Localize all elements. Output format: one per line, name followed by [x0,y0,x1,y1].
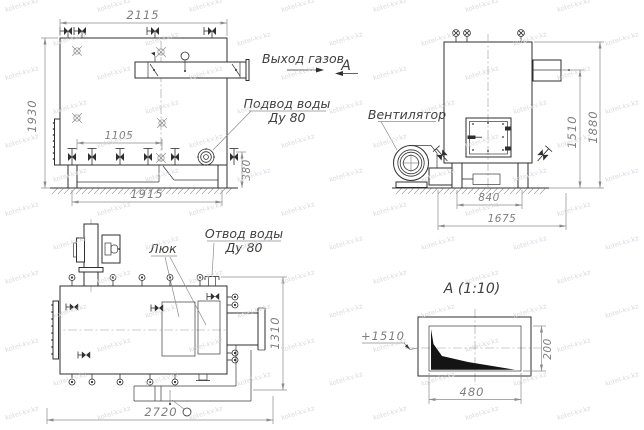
svg-text:kotel-kv.kz: kotel-kv.kz [4,0,40,14]
drawing-svg: 2115 1930 1105 380 1915 Выход газов Подв… [0,0,644,430]
svg-text:kotel-kv.kz: kotel-kv.kz [556,268,592,286]
front-view: A [335,30,604,230]
dim-1675: 1675 [488,213,517,225]
svg-text:kotel-kv.kz: kotel-kv.kz [280,404,316,422]
edge-valve-icon [227,294,239,300]
dim-1915: 1915 [130,187,163,201]
svg-text:kotel-kv.kz: kotel-kv.kz [328,166,364,184]
svg-text:kotel-kv.kz: kotel-kv.kz [52,98,88,116]
svg-text:kotel-kv.kz: kotel-kv.kz [4,64,40,82]
dim-200: 200 [542,338,554,360]
edge-valve-icon [227,302,239,308]
svg-text:kotel-kv.kz: kotel-kv.kz [464,404,500,422]
svg-text:kotel-kv.kz: kotel-kv.kz [512,370,548,388]
gas-outlet-label: Выход газов [262,51,344,66]
svg-text:kotel-kv.kz: kotel-kv.kz [4,200,40,218]
svg-text:kotel-kv.kz: kotel-kv.kz [464,336,500,354]
svg-text:kotel-kv.kz: kotel-kv.kz [328,234,364,252]
svg-text:kotel-kv.kz: kotel-kv.kz [372,200,408,218]
svg-text:kotel-kv.kz: kotel-kv.kz [604,30,640,48]
dim-2720: 2720 [144,405,177,419]
svg-text:kotel-kv.kz: kotel-kv.kz [556,64,592,82]
dim-480: 480 [460,385,485,399]
svg-text:kotel-kv.kz: kotel-kv.kz [280,200,316,218]
svg-text:kotel-kv.kz: kotel-kv.kz [280,64,316,82]
water-drain-label-line1: Отвод воды [205,226,283,241]
left-flange [53,119,60,165]
svg-text:kotel-kv.kz: kotel-kv.kz [512,98,548,116]
ground-hatch-front [396,189,545,195]
svg-text:kotel-kv.kz: kotel-kv.kz [372,0,408,14]
side-valve-icon [534,146,552,164]
svg-text:kotel-kv.kz: kotel-kv.kz [96,200,132,218]
svg-text:kotel-kv.kz: kotel-kv.kz [328,98,364,116]
svg-text:kotel-kv.kz: kotel-kv.kz [280,0,316,14]
svg-text:kotel-kv.kz: kotel-kv.kz [96,336,132,354]
svg-text:kotel-kv.kz: kotel-kv.kz [4,268,40,286]
svg-text:kotel-kv.kz: kotel-kv.kz [280,336,316,354]
svg-text:kotel-kv.kz: kotel-kv.kz [188,404,224,422]
svg-text:kotel-kv.kz: kotel-kv.kz [372,64,408,82]
svg-text:kotel-kv.kz: kotel-kv.kz [96,404,132,422]
svg-text:kotel-kv.kz: kotel-kv.kz [464,64,500,82]
water-supply-label-line2: Ду 80 [267,110,305,125]
door-hinge-icon [505,147,512,151]
svg-text:kotel-kv.kz: kotel-kv.kz [188,0,224,14]
svg-text:kotel-kv.kz: kotel-kv.kz [604,98,640,116]
svg-text:kotel-kv.kz: kotel-kv.kz [188,200,224,218]
svg-text:kotel-kv.kz: kotel-kv.kz [280,132,316,150]
water-supply-flange-icon [197,148,215,166]
svg-text:kotel-kv.kz: kotel-kv.kz [144,166,180,184]
section-cut-arrow-icon [335,71,343,76]
thermometer-icon [181,52,189,60]
duct-flange [246,60,249,81]
svg-text:kotel-kv.kz: kotel-kv.kz [604,370,640,388]
bottom-valve-icons [68,149,239,166]
door-hinge-icon [505,127,512,131]
svg-text:kotel-kv.kz: kotel-kv.kz [188,132,224,150]
svg-text:kotel-kv.kz: kotel-kv.kz [328,302,364,320]
svg-text:kotel-kv.kz: kotel-kv.kz [144,98,180,116]
svg-text:kotel-kv.kz: kotel-kv.kz [236,30,272,48]
svg-text:kotel-kv.kz: kotel-kv.kz [4,336,40,354]
svg-text:kotel-kv.kz: kotel-kv.kz [604,302,640,320]
svg-text:kotel-kv.kz: kotel-kv.kz [372,404,408,422]
technical-drawing-canvas: 2115 1930 1105 380 1915 Выход газов Подв… [0,0,644,430]
gas-flow-arrow-icon [316,68,324,73]
svg-text:kotel-kv.kz: kotel-kv.kz [464,0,500,14]
plan-view: 2720 1310 Люк Отвод воды Ду 80 [47,219,287,424]
svg-text:kotel-kv.kz: kotel-kv.kz [328,30,364,48]
svg-text:kotel-kv.kz: kotel-kv.kz [512,234,548,252]
svg-text:kotel-kv.kz: kotel-kv.kz [52,370,88,388]
dim-2115: 2115 [126,8,159,22]
svg-text:kotel-kv.kz: kotel-kv.kz [556,336,592,354]
svg-text:kotel-kv.kz: kotel-kv.kz [556,404,592,422]
ash-damper [461,174,500,185]
svg-text:kotel-kv.kz: kotel-kv.kz [188,336,224,354]
svg-text:kotel-kv.kz: kotel-kv.kz [556,200,592,218]
svg-text:kotel-kv.kz: kotel-kv.kz [280,268,316,286]
svg-text:kotel-kv.kz: kotel-kv.kz [420,234,456,252]
svg-text:kotel-kv.kz: kotel-kv.kz [96,64,132,82]
dim-1310: 1310 [268,316,282,349]
svg-text:kotel-kv.kz: kotel-kv.kz [328,370,364,388]
svg-text:kotel-kv.kz: kotel-kv.kz [604,234,640,252]
svg-text:kotel-kv.kz: kotel-kv.kz [144,30,180,48]
svg-text:kotel-kv.kz: kotel-kv.kz [556,0,592,14]
svg-text:kotel-kv.kz: kotel-kv.kz [420,370,456,388]
svg-text:kotel-kv.kz: kotel-kv.kz [4,132,40,150]
svg-text:kotel-kv.kz: kotel-kv.kz [372,268,408,286]
svg-text:kotel-kv.kz: kotel-kv.kz [604,166,640,184]
svg-text:kotel-kv.kz: kotel-kv.kz [420,30,456,48]
side-valve-icon [433,146,451,164]
svg-text:kotel-kv.kz: kotel-kv.kz [4,404,40,422]
bottom-flange-plan [196,374,210,381]
svg-text:kotel-kv.kz: kotel-kv.kz [236,370,272,388]
svg-text:kotel-kv.kz: kotel-kv.kz [188,268,224,286]
dim-1930: 1930 [25,99,39,132]
